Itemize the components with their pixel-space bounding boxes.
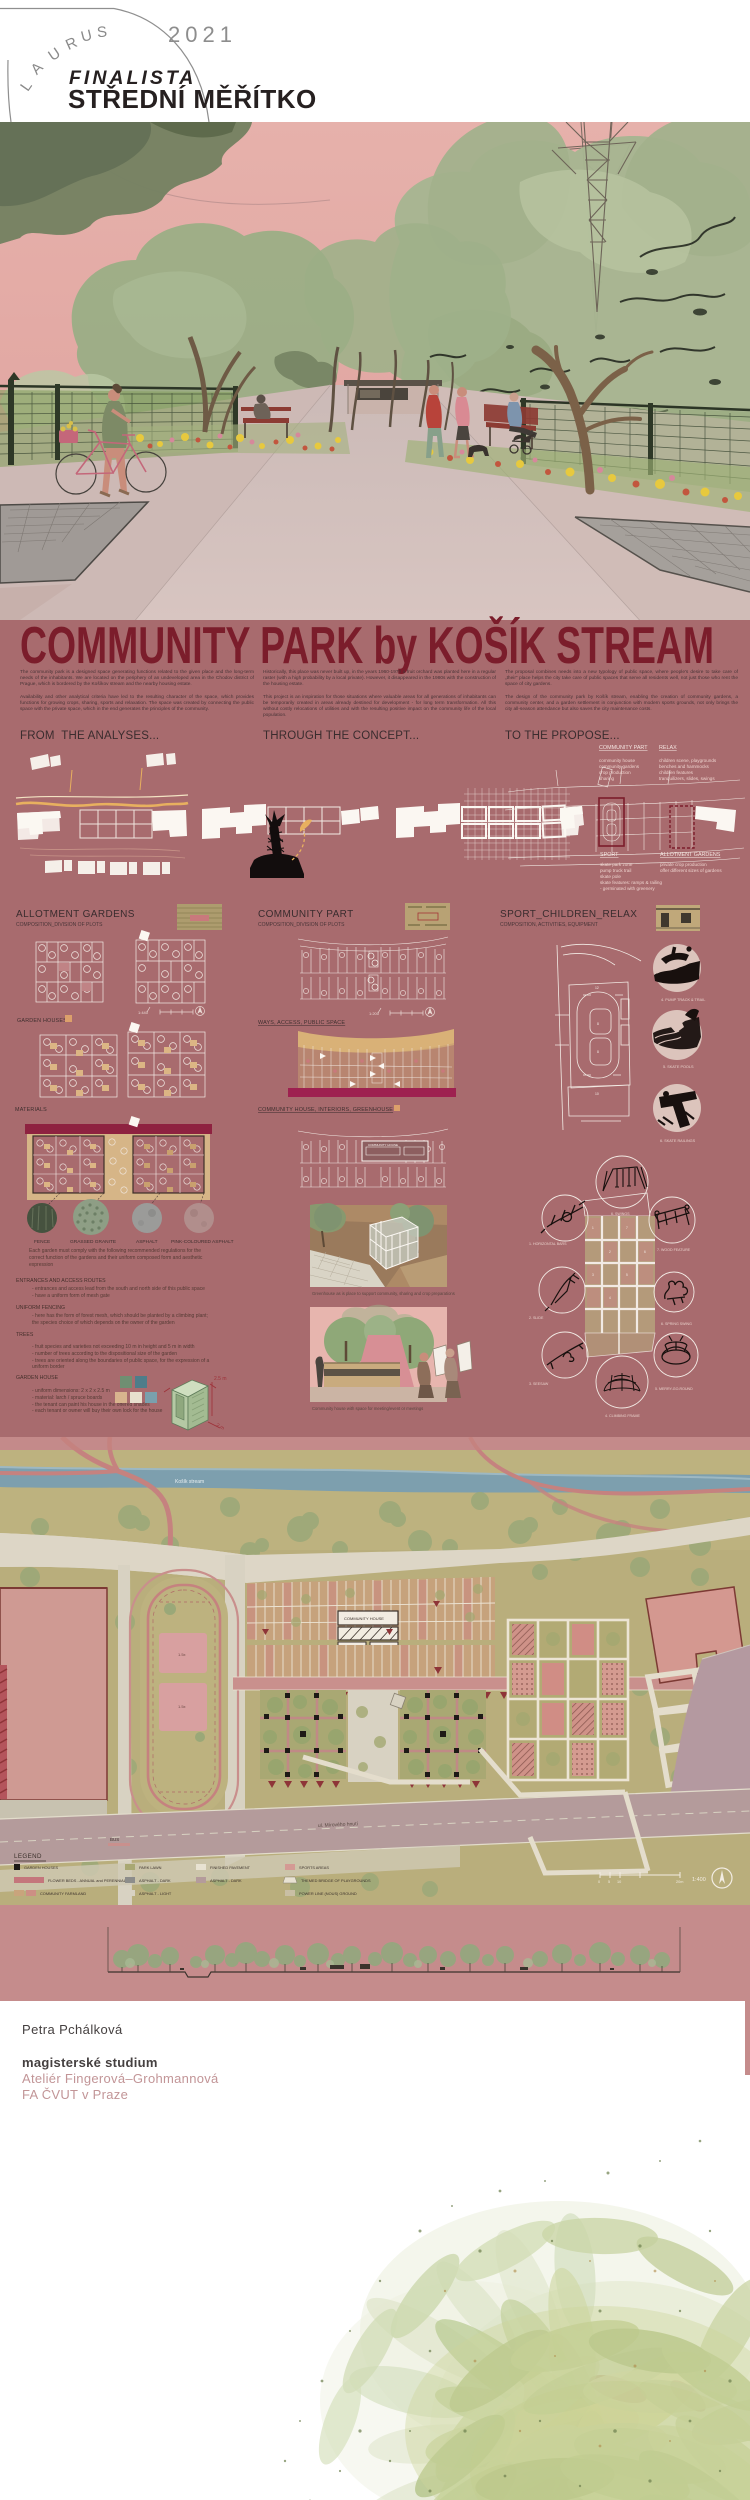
svg-text:PINK-COLOURED ASPHALT: PINK-COLOURED ASPHALT: [171, 1239, 234, 1245]
svg-text:8: 8: [597, 1022, 599, 1026]
svg-text:SPORT_CHILDREN_RELAX: SPORT_CHILDREN_RELAX: [500, 909, 637, 920]
svg-text:skate park zone: skate park zone: [600, 862, 633, 867]
svg-text:private crop production: private crop production: [660, 862, 707, 867]
svg-text:12: 12: [595, 986, 599, 990]
svg-text:1.5x: 1.5x: [178, 1652, 186, 1657]
svg-text:children scene, playgrounds: children scene, playgrounds: [659, 758, 717, 763]
svg-text:COMMUNITY HOUSE: COMMUNITY HOUSE: [368, 1143, 398, 1147]
svg-text:SPORTS AREAS: SPORTS AREAS: [299, 1865, 329, 1870]
svg-text:GRASSED GRANITE: GRASSED GRANITE: [70, 1239, 116, 1245]
svg-text:ALLOTMENT GARDENS: ALLOTMENT GARDENS: [660, 852, 721, 858]
svg-text:1.5x: 1.5x: [178, 1704, 186, 1709]
svg-text:FINISHED PAVEMENT: FINISHED PAVEMENT: [210, 1865, 251, 1870]
svg-text:S: S: [96, 23, 108, 41]
svg-text:MATERIALS: MATERIALS: [15, 1107, 47, 1113]
svg-text:LEGEND: LEGEND: [14, 1853, 42, 1860]
svg-text:community gardens: community gardens: [599, 764, 640, 769]
svg-text:PARK LAWN: PARK LAWN: [139, 1865, 162, 1870]
svg-text:A: A: [28, 59, 47, 78]
svg-text:FENCE: FENCE: [34, 1239, 50, 1245]
svg-text:U: U: [45, 45, 63, 65]
svg-text:10: 10: [617, 1880, 621, 1884]
svg-text:skate features: ramps & railin: skate features: ramps & railing: [600, 880, 662, 885]
svg-text:COMPOSITION_DIVISION OF PLOTS: COMPOSITION_DIVISION OF PLOTS: [258, 922, 345, 928]
svg-text:COMMUNITY FARMLAND: COMMUNITY FARMLAND: [40, 1891, 86, 1896]
svg-text:0: 0: [598, 1880, 600, 1884]
svg-text:6. SKATE RAILINGS: 6. SKATE RAILINGS: [660, 1139, 696, 1143]
svg-text:7. WOOD FEATURE: 7. WOOD FEATURE: [657, 1248, 691, 1252]
svg-text:2: 2: [609, 1250, 611, 1254]
svg-text:1:400: 1:400: [692, 1877, 706, 1883]
svg-text:COMPOSITION, ACTIVITIES, EQUIP: COMPOSITION, ACTIVITIES, EQUIPMENT: [500, 922, 598, 928]
svg-text:1:200: 1:200: [369, 1011, 380, 1016]
svg-text:5. MERRY-GO-ROUND: 5. MERRY-GO-ROUND: [655, 1387, 693, 1391]
svg-text:8: 8: [597, 1050, 599, 1054]
svg-text:ASPHALT - DARK: ASPHALT - DARK: [210, 1878, 242, 1883]
svg-text:- germinated with greenery: - germinated with greenery: [600, 886, 655, 891]
svg-text:Košík stream: Košík stream: [175, 1479, 204, 1485]
svg-text:3: 3: [592, 1273, 594, 1277]
svg-text:2. SLIDE: 2. SLIDE: [529, 1316, 544, 1320]
svg-text:BUS: BUS: [110, 1837, 119, 1842]
svg-text:children features: children features: [659, 770, 694, 775]
svg-text:L: L: [17, 78, 36, 95]
svg-text:WAYS, ACCESS, PUBLIC SPACE: WAYS, ACCESS, PUBLIC SPACE: [258, 1020, 345, 1026]
svg-text:COMMUNITY HOUSE: COMMUNITY HOUSE: [344, 1616, 384, 1621]
svg-text:2.5 m: 2.5 m: [214, 1376, 227, 1382]
svg-text:pump truck trail: pump truck trail: [600, 868, 631, 873]
svg-text:ASPHALT: ASPHALT: [136, 1239, 158, 1245]
svg-text:6. SPRING SWING: 6. SPRING SWING: [661, 1322, 692, 1326]
svg-text:3. SEESAW: 3. SEESAW: [529, 1382, 549, 1386]
svg-text:ASPHALT - LIGHT: ASPHALT - LIGHT: [139, 1891, 172, 1896]
svg-text:COMMUNITY PART: COMMUNITY PART: [258, 909, 354, 920]
svg-text:THEMED BRIDGE OF PLAYGROUNDS: THEMED BRIDGE OF PLAYGROUNDS: [301, 1878, 371, 1883]
svg-text:20m: 20m: [676, 1880, 683, 1884]
svg-text:2021: 2021: [168, 22, 237, 47]
svg-text:R: R: [63, 34, 80, 54]
svg-text:2 m: 2 m: [215, 1422, 225, 1431]
svg-text:4. CLIMBING FRAME: 4. CLIMBING FRAME: [605, 1414, 641, 1418]
svg-text:STŘEDNÍ MĚŘÍTKO: STŘEDNÍ MĚŘÍTKO: [68, 84, 317, 114]
svg-text:1: 1: [592, 1226, 594, 1230]
svg-text:Community house with space for: Community house with space for meeting/e…: [312, 1406, 423, 1411]
svg-text:GARDEN HOUSES: GARDEN HOUSES: [24, 1865, 59, 1870]
svg-text:crop production: crop production: [599, 770, 631, 775]
svg-text:7: 7: [626, 1226, 628, 1230]
svg-text:benches and hammocks: benches and hammocks: [659, 764, 709, 769]
svg-text:5: 5: [608, 1880, 610, 1884]
svg-text:skate pole: skate pole: [600, 874, 621, 879]
svg-text:4: 4: [609, 1296, 611, 1300]
svg-text:COMMUNITY HOUSE, INTERIORS, GR: COMMUNITY HOUSE, INTERIORS, GREENHOUSE: [258, 1107, 393, 1113]
svg-text:ASPHALT - DARK: ASPHALT - DARK: [139, 1878, 171, 1883]
svg-text:tranquilizers, slides, swings: tranquilizers, slides, swings: [659, 776, 715, 781]
svg-text:FLOWER BEDS - ANNUAL and PEREN: FLOWER BEDS - ANNUAL and PERENNIAL: [48, 1878, 127, 1883]
svg-text:RELAX: RELAX: [659, 745, 677, 751]
svg-text:4. PUMP TRACK & TRAIL: 4. PUMP TRACK & TRAIL: [661, 998, 705, 1002]
svg-text:U: U: [79, 27, 94, 46]
svg-text:GARDEN HOUSES: GARDEN HOUSES: [17, 1018, 67, 1024]
svg-text:COMMUNITY PART: COMMUNITY PART: [599, 745, 648, 751]
svg-text:ALLOTMENT GARDENS: ALLOTMENT GARDENS: [16, 909, 135, 920]
svg-text:community house: community house: [599, 758, 635, 763]
svg-text:Greenhouse as is place to supp: Greenhouse as is place to support commun…: [312, 1291, 455, 1296]
svg-text:6: 6: [644, 1250, 646, 1254]
svg-text:6. SWINGS: 6. SWINGS: [611, 1212, 630, 1216]
svg-text:POWER LINE (NOUS) GROUND: POWER LINE (NOUS) GROUND: [299, 1891, 357, 1896]
svg-text:5: 5: [626, 1273, 628, 1277]
svg-text:COMMUNITY PARK by KOŠÍK STREAM: COMMUNITY PARK by KOŠÍK STREAM: [20, 616, 714, 675]
svg-text:5. SKATE POOLS: 5. SKATE POOLS: [663, 1065, 694, 1069]
svg-text:1:440: 1:440: [138, 1010, 149, 1015]
svg-text:SPORT: SPORT: [600, 852, 619, 858]
svg-text:1. HORIZONTAL BARS: 1. HORIZONTAL BARS: [529, 1242, 567, 1246]
svg-text:offer different sizes of garde: offer different sizes of gardens: [660, 868, 722, 873]
svg-text:10: 10: [595, 1092, 599, 1096]
svg-text:sharing: sharing: [599, 776, 615, 781]
svg-text:COMPOSITION_DIVISION OF PLOTS: COMPOSITION_DIVISION OF PLOTS: [16, 922, 103, 928]
